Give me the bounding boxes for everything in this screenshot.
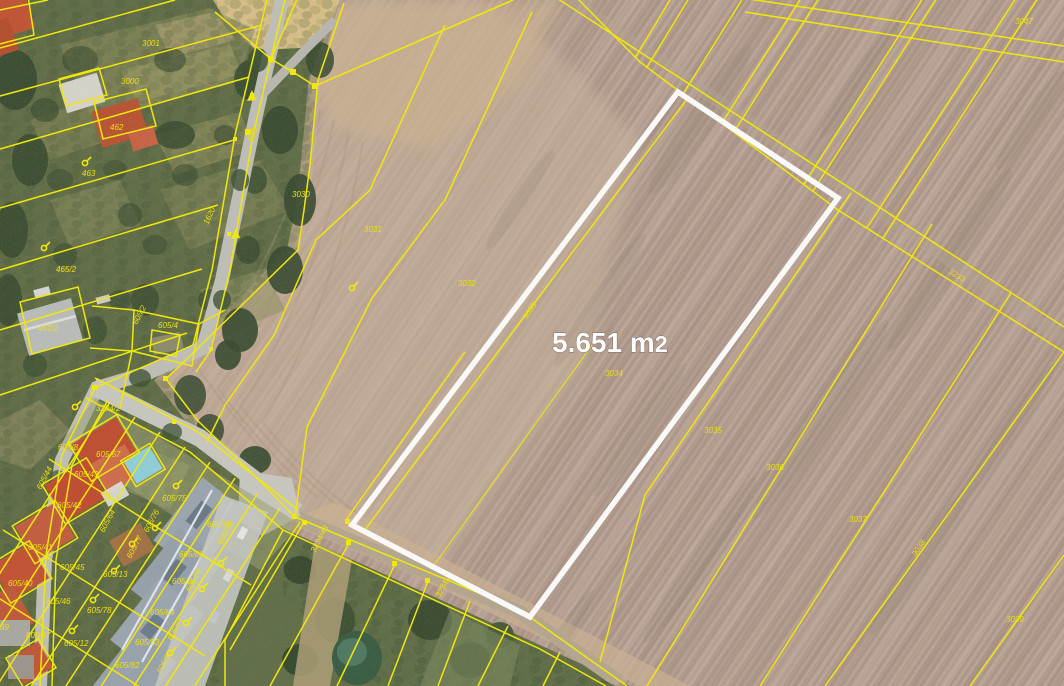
svg-text:5.651 m2: 5.651 m2 [552, 327, 668, 358]
